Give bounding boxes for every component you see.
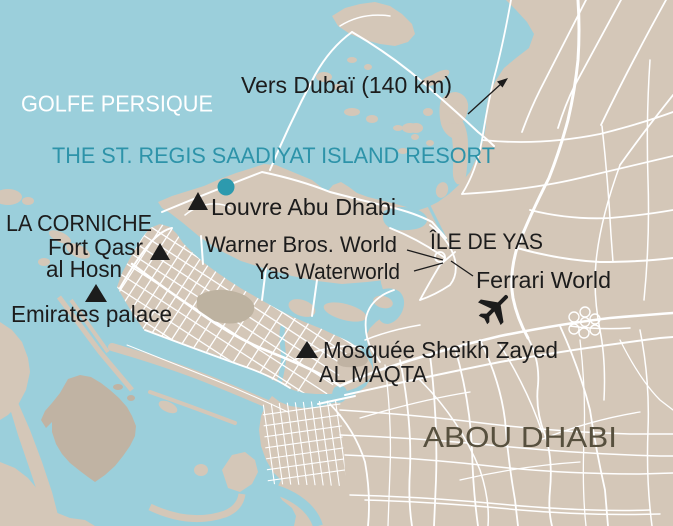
- svg-text:AL MAQTA: AL MAQTA: [319, 361, 428, 387]
- svg-text:Ferrari World: Ferrari World: [476, 267, 611, 293]
- svg-text:LA CORNICHE: LA CORNICHE: [6, 210, 152, 236]
- svg-text:THE ST. REGIS SAADIYAT ISLAND: THE ST. REGIS SAADIYAT ISLAND RESORT: [52, 143, 495, 168]
- svg-text:ABOU DHABI: ABOU DHABI: [423, 422, 617, 454]
- svg-text:ÎLE DE YAS: ÎLE DE YAS: [429, 229, 543, 254]
- svg-text:GOLFE PERSIQUE: GOLFE PERSIQUE: [21, 91, 213, 117]
- svg-text:Yas Waterworld: Yas Waterworld: [255, 259, 400, 284]
- svg-text:Emirates palace: Emirates palace: [11, 301, 172, 327]
- svg-text:Louvre Abu Dhabi: Louvre Abu Dhabi: [211, 194, 396, 220]
- svg-text:al Hosn: al Hosn: [46, 256, 122, 282]
- svg-text:Mosquée Sheikh Zayed: Mosquée Sheikh Zayed: [323, 337, 558, 363]
- svg-text:Warner Bros. World: Warner Bros. World: [205, 232, 397, 257]
- svg-text:Vers Dubaï (140 km): Vers Dubaï (140 km): [241, 72, 452, 98]
